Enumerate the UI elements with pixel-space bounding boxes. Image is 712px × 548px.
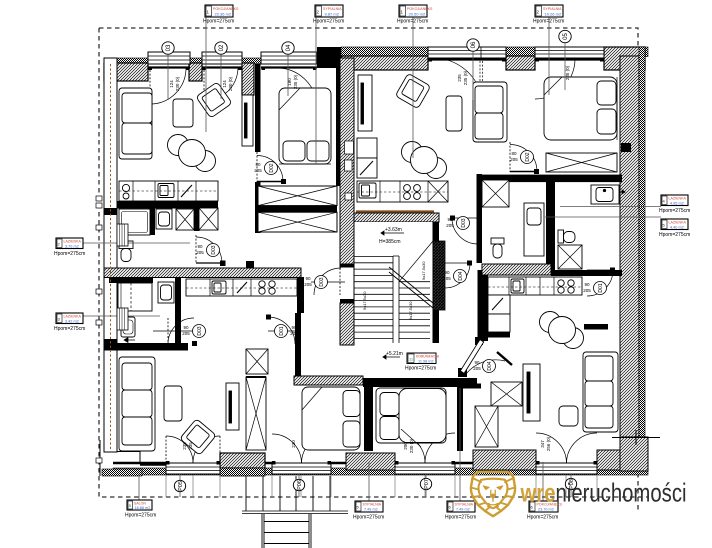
svg-text:Hpom=275cm: Hpom=275cm	[54, 251, 85, 257]
svg-text:200: 200	[403, 442, 408, 450]
svg-text:4.40 m2: 4.40 m2	[670, 226, 684, 230]
svg-text:180: 180	[287, 78, 292, 86]
svg-text:4.95 m2: 4.95 m2	[670, 202, 684, 206]
svg-text:Hpom=275cm: Hpom=275cm	[54, 326, 85, 332]
svg-text:124: 124	[169, 80, 174, 88]
svg-text:H=385cm: H=385cm	[379, 239, 401, 245]
svg-text:256 (0): 256 (0)	[546, 436, 551, 451]
svg-text:D03: D03	[211, 245, 217, 254]
svg-text:11.98 m2: 11.98 m2	[418, 360, 434, 364]
svg-text:P06: P06	[297, 480, 303, 490]
svg-text:P05: P05	[178, 481, 184, 491]
svg-text:KOMUNIKACJA: KOMUNIKACJA	[416, 355, 440, 359]
svg-text:90: 90	[197, 244, 203, 249]
svg-text:9x17.5x30: 9x17.5x30	[421, 261, 426, 280]
svg-text:205: 205	[182, 331, 190, 336]
svg-text:05: 05	[563, 33, 569, 40]
svg-text:80: 80	[511, 151, 517, 156]
svg-text:9x17.5x30: 9x17.5x30	[362, 291, 367, 310]
svg-text:Hpom=275cm: Hpom=275cm	[659, 232, 690, 238]
svg-text:90: 90	[444, 270, 450, 275]
svg-text:Hpom=275cm: Hpom=275cm	[527, 515, 558, 521]
svg-text:10.26 m2: 10.26 m2	[545, 12, 562, 17]
svg-text:90: 90	[447, 217, 453, 222]
svg-text:7.49 m2: 7.49 m2	[364, 508, 378, 512]
svg-text:90: 90	[305, 276, 311, 281]
svg-text:06: 06	[471, 41, 477, 48]
svg-text:SYPIALNIA: SYPIALNIA	[323, 7, 342, 11]
svg-text:SYPIALNIA: SYPIALNIA	[363, 503, 382, 507]
svg-text:SYPIALNIA: SYPIALNIA	[543, 7, 562, 11]
svg-text:D01: D01	[598, 283, 604, 292]
svg-text:LAZIENKA: LAZIENKA	[64, 240, 82, 244]
svg-text:nieruchomości: nieruchomości	[556, 477, 687, 507]
svg-text:Hpom=275cm: Hpom=275cm	[125, 513, 156, 519]
svg-text:235 (0): 235 (0)	[565, 65, 570, 80]
svg-text:Hpom=275cm: Hpom=275cm	[203, 19, 234, 25]
svg-text:235: 235	[182, 442, 187, 450]
svg-text:3.42 m2: 3.42 m2	[65, 320, 79, 324]
svg-text:230 (0): 230 (0)	[228, 76, 233, 91]
svg-text:22.36 m2: 22.36 m2	[215, 12, 232, 17]
svg-text:205: 205	[304, 282, 312, 287]
svg-text:205: 205	[583, 288, 591, 293]
svg-text:D03: D03	[197, 326, 203, 335]
svg-text:SYPIALNIA: SYPIALNIA	[455, 503, 474, 507]
svg-text:D02: D02	[525, 152, 531, 161]
svg-text:D03: D03	[319, 277, 325, 286]
svg-text:205: 205	[254, 168, 262, 173]
svg-text:02: 02	[219, 44, 225, 51]
svg-text:3.70 m2: 3.70 m2	[65, 245, 79, 249]
svg-text:124: 124	[222, 80, 227, 88]
svg-text:LAZIENKA: LAZIENKA	[669, 197, 687, 201]
svg-text:D03: D03	[461, 218, 467, 227]
svg-text:23.70 m2: 23.70 m2	[538, 508, 554, 512]
svg-text:Hpom=275cm: Hpom=275cm	[397, 19, 428, 25]
svg-text:Hpom=275cm: Hpom=275cm	[445, 515, 476, 521]
svg-text:205: 205	[196, 250, 204, 255]
svg-text:POKOJ/ANEKS: POKOJ/ANEKS	[407, 7, 433, 11]
svg-text:+5.21m: +5.21m	[386, 351, 403, 357]
svg-text:235: 235	[188, 442, 193, 450]
svg-text:90: 90	[183, 325, 189, 330]
svg-text:20.50 m2: 20.50 m2	[409, 12, 426, 17]
svg-text:wre: wre	[520, 477, 556, 507]
svg-text:230 (0): 230 (0)	[175, 76, 180, 91]
svg-text:205: 205	[443, 276, 451, 281]
svg-text:D01: D01	[279, 326, 285, 335]
svg-text:235: 235	[457, 74, 462, 82]
svg-text:205: 205	[446, 223, 454, 228]
svg-text:235 (0): 235 (0)	[293, 74, 298, 89]
svg-text:347: 347	[540, 440, 545, 448]
svg-text:D04: D04	[458, 271, 464, 280]
svg-text:SALON: SALON	[134, 502, 146, 506]
svg-text:Hpom=275cm: Hpom=275cm	[533, 19, 564, 25]
svg-text:205: 205	[473, 366, 481, 371]
svg-text:04: 04	[286, 44, 292, 51]
svg-text:03: 03	[166, 44, 172, 51]
svg-text:Hpom=275cm: Hpom=275cm	[313, 19, 344, 25]
svg-text:D02: D02	[269, 163, 275, 172]
svg-text:90: 90	[291, 325, 297, 330]
svg-text:7.49 m2: 7.49 m2	[456, 508, 470, 512]
svg-text:16.88 m2: 16.88 m2	[135, 506, 151, 510]
svg-text:9.87 m2: 9.87 m2	[325, 12, 340, 17]
svg-text:9x17.5x30: 9x17.5x30	[408, 301, 413, 320]
svg-text:230 (0): 230 (0)	[409, 438, 414, 453]
svg-text:80: 80	[255, 162, 261, 167]
svg-text:90: 90	[474, 360, 480, 365]
svg-text:Hpom=275cm: Hpom=275cm	[353, 515, 384, 521]
svg-text:D04: D04	[487, 361, 493, 370]
svg-text:LAZIENKA: LAZIENKA	[64, 315, 82, 319]
svg-text:90: 90	[584, 282, 590, 287]
svg-text:235 (0): 235 (0)	[463, 70, 468, 85]
svg-text:Hpom=275cm: Hpom=275cm	[405, 366, 436, 372]
svg-text:Hpom=275cm: Hpom=275cm	[659, 208, 690, 214]
svg-text:LAZIENKA: LAZIENKA	[669, 221, 687, 225]
svg-text:230: 230	[291, 440, 296, 448]
svg-text:P07: P07	[424, 479, 430, 489]
svg-text:POKOJ/ANEKS: POKOJ/ANEKS	[213, 7, 239, 11]
svg-text:+3.63m: +3.63m	[385, 227, 402, 233]
svg-text:205: 205	[510, 157, 518, 162]
svg-text:205: 205	[290, 331, 298, 336]
